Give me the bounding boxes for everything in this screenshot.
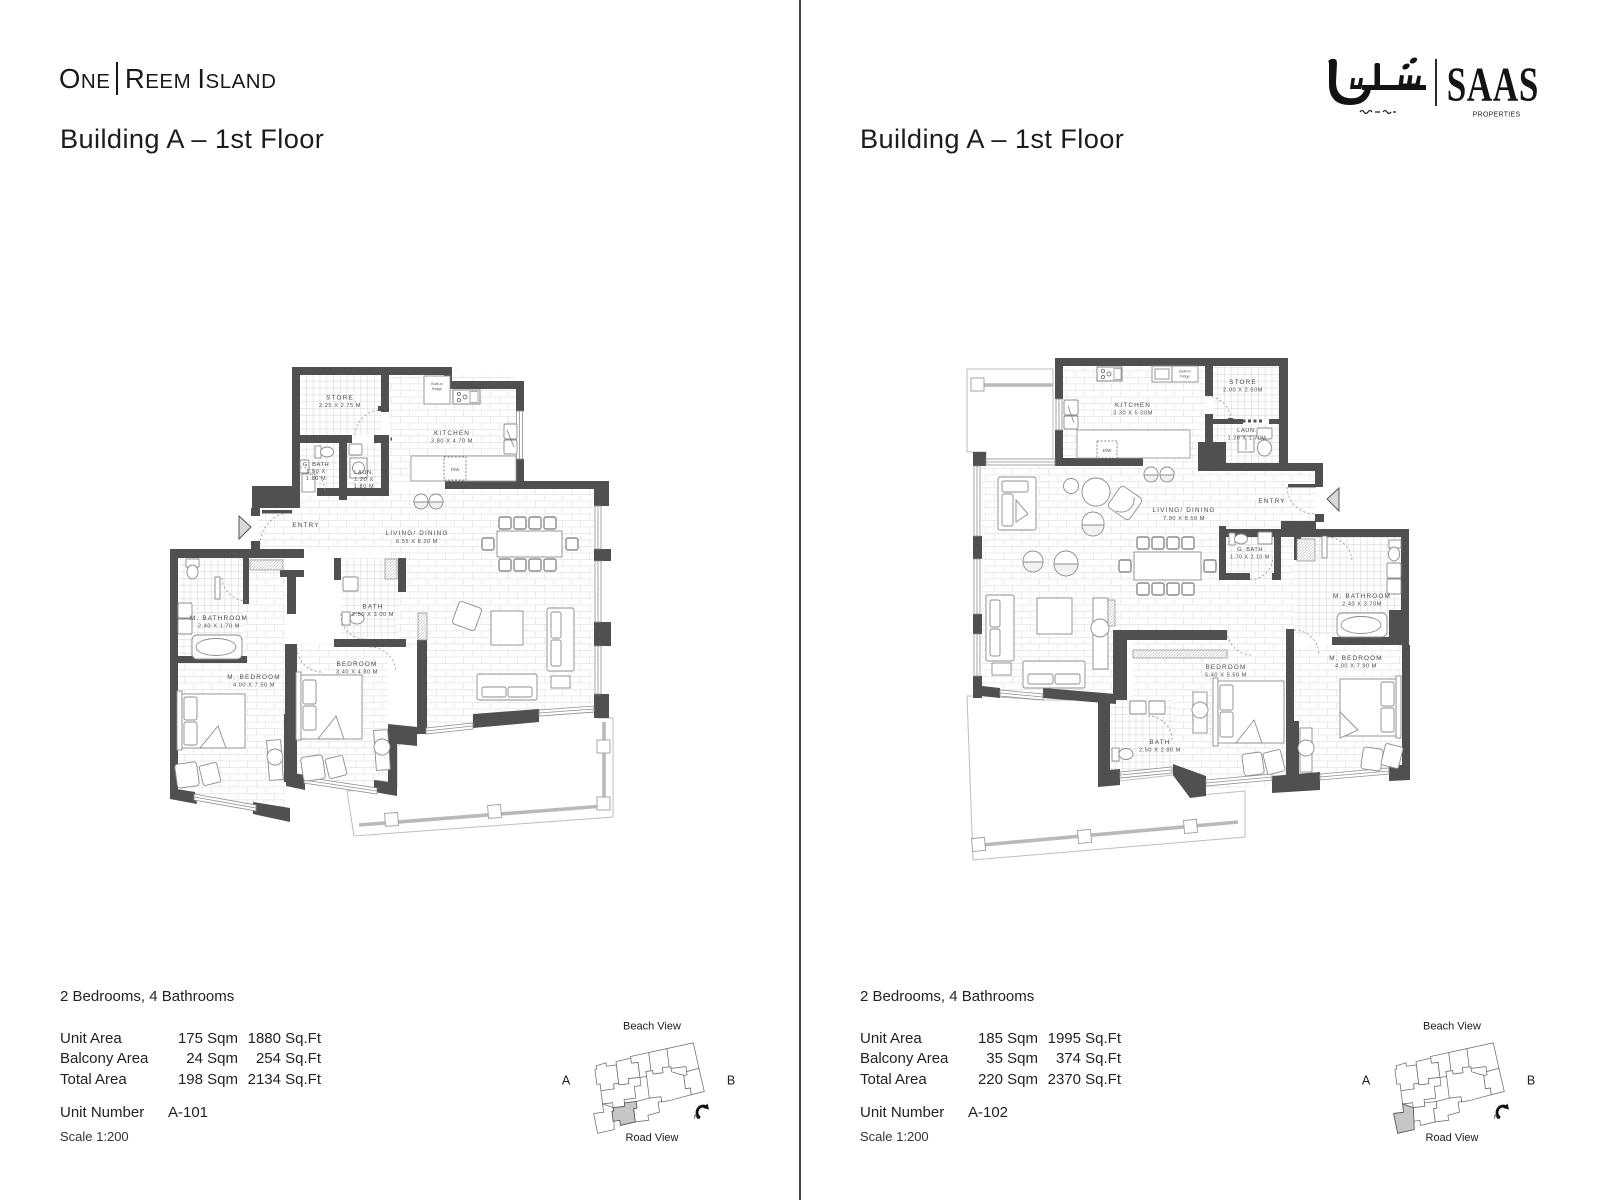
svg-text:2.50 X 3.00 M: 2.50 X 3.00 M xyxy=(352,612,394,618)
svg-text:2.40 X 3.70M: 2.40 X 3.70M xyxy=(1342,602,1382,608)
svg-text:SAAS: SAAS xyxy=(1447,58,1539,112)
svg-text:LAUN.: LAUN. xyxy=(1237,428,1257,434)
svg-text:M. BATHROOM: M. BATHROOM xyxy=(1333,593,1391,600)
svg-text:1.80 M: 1.80 M xyxy=(306,476,326,482)
svg-text:KITCHEN: KITCHEN xyxy=(1115,402,1151,409)
svg-text:fridge: fridge xyxy=(1180,375,1190,379)
svg-text:Road View: Road View xyxy=(626,1132,679,1144)
svg-text:2.25 X 2.75 M: 2.25 X 2.75 M xyxy=(319,403,361,409)
svg-text:STORE: STORE xyxy=(1229,379,1257,386)
svg-text:A: A xyxy=(1362,1074,1371,1088)
svg-text:BEDROOM: BEDROOM xyxy=(1205,664,1246,671)
svg-text:BATH: BATH xyxy=(1149,739,1170,746)
svg-text:1.20 X: 1.20 X xyxy=(354,477,373,483)
svg-text:Built-in: Built-in xyxy=(1179,370,1191,374)
svg-text:2.00 X 2.50M: 2.00 X 2.50M xyxy=(1223,388,1263,394)
svg-text:3.30 X 5.00M: 3.30 X 5.00M xyxy=(1113,411,1153,417)
svg-text:1.20 X 1.70M: 1.20 X 1.70M xyxy=(1228,436,1267,442)
svg-text:PROPERTIES: PROPERTIES xyxy=(1473,112,1521,119)
svg-text:M. BEDROOM: M. BEDROOM xyxy=(227,674,280,681)
svg-text:M. BEDROOM: M. BEDROOM xyxy=(1329,655,1382,662)
svg-text:N: N xyxy=(694,1114,699,1121)
svg-text:G. BATH: G. BATH xyxy=(1237,547,1263,553)
svg-text:A: A xyxy=(562,1074,571,1088)
svg-text:BATH: BATH xyxy=(362,604,383,611)
svg-text:7.90 X 8.50 M: 7.90 X 8.50 M xyxy=(1163,516,1205,522)
svg-text:fridge: fridge xyxy=(432,387,442,391)
svg-text:G. BATH: G. BATH xyxy=(303,462,330,468)
svg-text:1.70 X 2.10 M: 1.70 X 2.10 M xyxy=(1230,555,1269,561)
svg-text:B: B xyxy=(1527,1074,1535,1088)
svg-text:Beach View: Beach View xyxy=(623,1021,681,1033)
svg-text:1.80 M: 1.80 M xyxy=(354,484,374,490)
svg-text:2.50 X 2.80 M: 2.50 X 2.80 M xyxy=(1139,748,1181,754)
svg-text:Beach View: Beach View xyxy=(1423,1021,1481,1033)
svg-text:LAUN.: LAUN. xyxy=(354,470,374,476)
svg-text:1.50 X: 1.50 X xyxy=(306,469,325,475)
svg-text:B: B xyxy=(727,1074,735,1088)
svg-text:LIVING/ DINING: LIVING/ DINING xyxy=(386,530,449,537)
svg-text:3.40 X 4.80 M: 3.40 X 4.80 M xyxy=(336,670,378,676)
svg-text:KITCHEN: KITCHEN xyxy=(434,430,470,437)
svg-text:LIVING/ DINING: LIVING/ DINING xyxy=(1153,507,1216,514)
svg-text:BEDROOM: BEDROOM xyxy=(336,661,377,668)
svg-text:4.00 X 7.50 M: 4.00 X 7.50 M xyxy=(233,683,275,689)
svg-text:3.80 X 4.70 M: 3.80 X 4.70 M xyxy=(431,439,473,445)
svg-text:5.40 X 5.50 M: 5.40 X 5.50 M xyxy=(1205,673,1247,679)
svg-text:STORE: STORE xyxy=(326,395,354,402)
svg-text:Built-in: Built-in xyxy=(431,382,443,386)
svg-text:D/W: D/W xyxy=(451,467,461,472)
svg-text:M. BATHROOM: M. BATHROOM xyxy=(190,615,248,622)
svg-text:ENTRY: ENTRY xyxy=(1258,498,1285,505)
svg-text:D/W: D/W xyxy=(1103,448,1113,453)
svg-text:2.40 X 1.70 M: 2.40 X 1.70 M xyxy=(198,624,240,630)
svg-text:N: N xyxy=(1494,1114,1499,1121)
svg-text:ENTRY: ENTRY xyxy=(292,522,319,529)
svg-text:Road View: Road View xyxy=(1426,1132,1479,1144)
svg-text:4.00 X 7.90 M: 4.00 X 7.90 M xyxy=(1335,664,1377,670)
svg-text:6.55 X 8.20 M: 6.55 X 8.20 M xyxy=(396,539,438,545)
